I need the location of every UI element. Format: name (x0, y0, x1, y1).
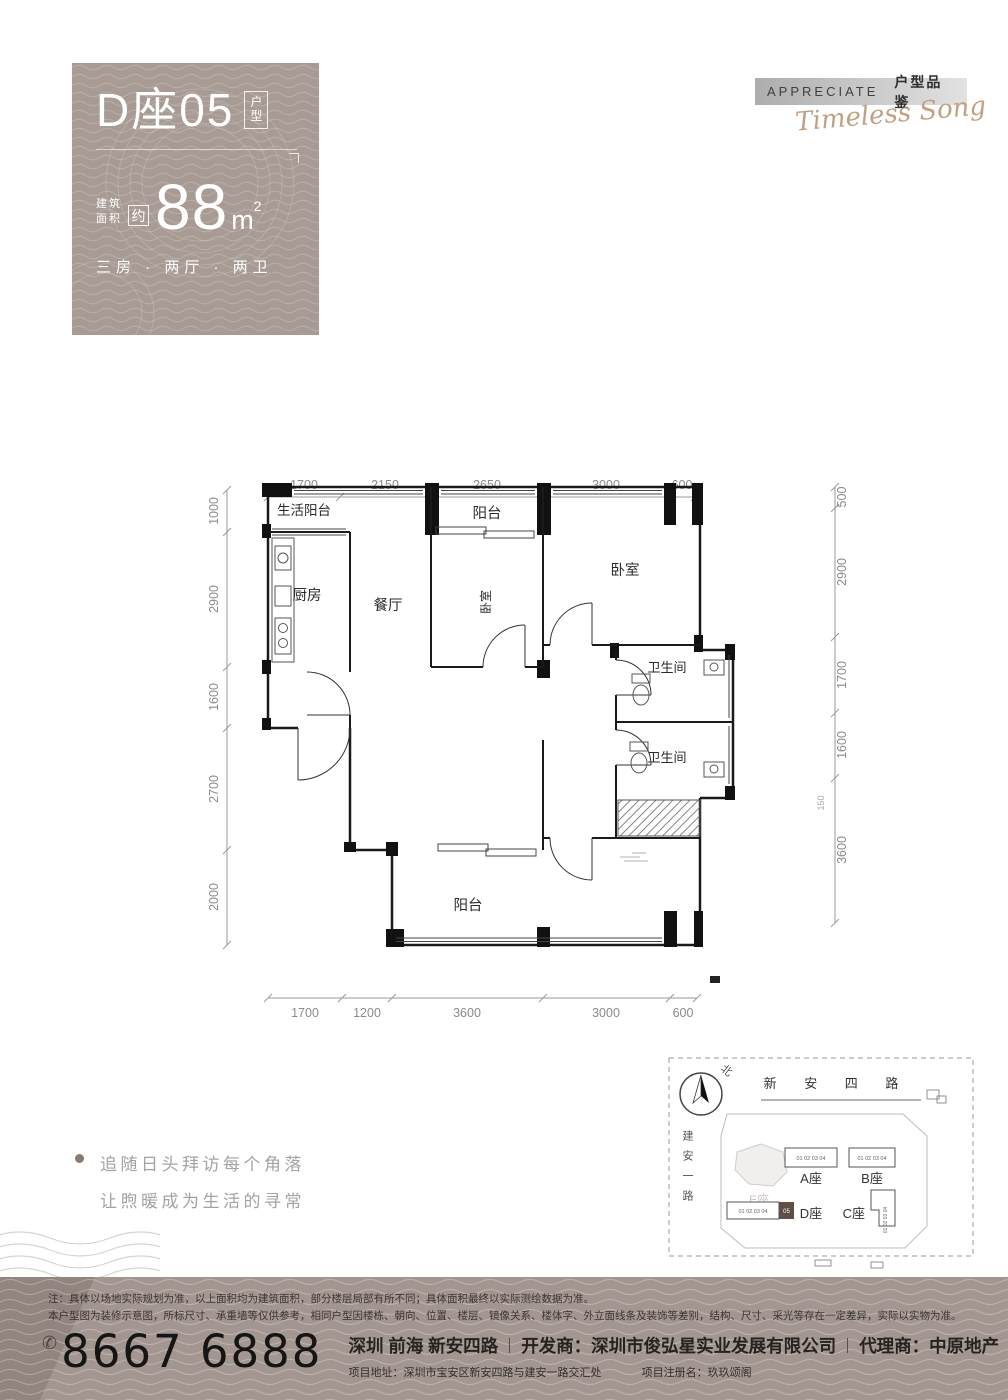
outer-walls (268, 487, 733, 945)
room-bedroom-mid: 卧室 (478, 590, 493, 614)
developer: 开发商：深圳市俊弘星实业发展有限公司 (521, 1333, 836, 1358)
svg-text:3600: 3600 (453, 1006, 481, 1020)
wave-decoration-left (0, 1230, 160, 1278)
svg-text:D座: D座 (800, 1206, 822, 1221)
phone-icon: ✆ (42, 1333, 57, 1354)
svg-text:1600: 1600 (207, 683, 221, 711)
svg-text:2700: 2700 (207, 775, 221, 803)
svg-text:1600: 1600 (835, 731, 849, 759)
divider (96, 149, 297, 150)
room-kitchen: 厨房 (293, 587, 322, 604)
road-label-left: 建安一路 (681, 1129, 694, 1210)
svg-text:1700: 1700 (290, 478, 318, 492)
svg-text:05: 05 (783, 1209, 790, 1215)
compass-icon: 北 (680, 1062, 735, 1115)
svg-text:C座: C座 (843, 1206, 865, 1221)
room-service-balcony: 生活阳台 (277, 503, 331, 518)
room-bath-1: 卫生间 (647, 660, 686, 675)
svg-text:3000: 3000 (592, 478, 620, 492)
area-unit: m2 (231, 199, 261, 234)
project-location: 深圳 前海 新安四路 (348, 1333, 498, 1358)
svg-text:3600: 3600 (835, 836, 849, 864)
divider (509, 1338, 510, 1353)
svg-text:A座: A座 (800, 1171, 822, 1186)
svg-text:01 02 03 04: 01 02 03 04 (796, 1156, 825, 1162)
banner-english: APPRECIATE (767, 84, 878, 99)
svg-text:B座: B座 (861, 1171, 883, 1186)
layout-description: 三房 · 两厅 · 两卫 (96, 256, 297, 277)
room-bath-2: 卫生间 (647, 750, 686, 765)
site-map: 北 新 安 四 路 建安一路 E座 01 02 03 04 A座 01 02 0… (665, 1052, 987, 1278)
svg-text:1200: 1200 (353, 1006, 381, 1020)
wardrobe-hatch (618, 800, 700, 836)
kitchen-fixtures (272, 538, 294, 662)
unit-number: D座05 (96, 87, 234, 133)
bullet-dot-icon (75, 1154, 84, 1163)
phone-number: 8667 6888 (61, 1329, 322, 1374)
svg-text:1000: 1000 (207, 497, 221, 525)
project-address: 项目地址：深圳市宝安区新安四路与建安一路交汇处 (348, 1367, 601, 1379)
svg-text:600: 600 (673, 1006, 694, 1020)
svg-text:2000: 2000 (207, 883, 221, 911)
svg-text:3000: 3000 (592, 1006, 620, 1020)
footer-band: 注：具体以场地实际规划为准，以上面积均为建筑面积，部分楼层局部有所不同；具体面积… (0, 1277, 1008, 1400)
divider (847, 1338, 848, 1353)
svg-text:2650: 2650 (473, 478, 501, 492)
slogan-line-2: 让煦暖成为生活的寻常 (100, 1183, 305, 1220)
slogan: 追随日头拜访每个角落 让煦暖成为生活的寻常 (75, 1146, 305, 1221)
area-label: 建筑 面积 (96, 197, 122, 227)
room-bedroom-right: 卧室 (611, 562, 640, 579)
area-value: 88 (155, 180, 228, 234)
svg-text:01 02 03 04: 01 02 03 04 (883, 1207, 889, 1234)
svg-text:2150: 2150 (371, 478, 399, 492)
svg-text:1700: 1700 (291, 1006, 319, 1020)
windows (272, 491, 729, 942)
unit-type-tag: 户型 (244, 91, 268, 129)
disclaimer-line-1: 注：具体以场地实际规划为准，以上面积均为建筑面积，部分楼层局部有所不同；具体面积… (48, 1291, 1008, 1308)
svg-text:2900: 2900 (835, 558, 849, 586)
slogan-line-1: 追随日头拜访每个角落 (100, 1146, 305, 1183)
svg-text:2900: 2900 (207, 585, 221, 613)
svg-text:01 02 03 04: 01 02 03 04 (738, 1209, 767, 1215)
north-label: 北 (718, 1062, 735, 1079)
svg-text:150: 150 (816, 795, 826, 810)
room-balcony-bottom: 阳台 (454, 897, 483, 914)
svg-text:01 02 03 04: 01 02 03 04 (857, 1156, 886, 1162)
room-balcony-top: 阳台 (473, 505, 502, 522)
room-dining: 餐厅 (374, 597, 403, 614)
disclaimer: 注：具体以场地实际规划为准，以上面积均为建筑面积，部分楼层局部有所不同；具体面积… (0, 1277, 1008, 1325)
dimension-lines (223, 483, 839, 1002)
unit-title-card: D座05 户型 建筑 面积 约 88 m2 三房 · 两厅 · 两卫 (72, 63, 319, 335)
road-label-top: 新 安 四 路 (764, 1076, 911, 1091)
room-labels: 生活阳台 厨房 餐厅 阳台 卧室 卧室 卫生间 卫生间 阳台 (277, 503, 687, 914)
agent: 代理商：中原地产 (859, 1333, 999, 1358)
approx-badge: 约 (128, 205, 149, 226)
disclaimer-line-2: 本户型图为装修示意图，所标尺寸、承重墙等仅供参考，相同户型因楼栋、朝向、位置、楼… (48, 1308, 1008, 1325)
svg-text:500: 500 (835, 487, 849, 508)
floorplan: 1700 2150 2650 3000 600 1700 1200 3600 3… (180, 410, 860, 1060)
svg-text:1700: 1700 (835, 661, 849, 689)
registered-name: 项目注册名：玖玖颂阁 (642, 1367, 752, 1379)
dimension-labels: 1700 2150 2650 3000 600 1700 1200 3600 3… (207, 478, 849, 1020)
